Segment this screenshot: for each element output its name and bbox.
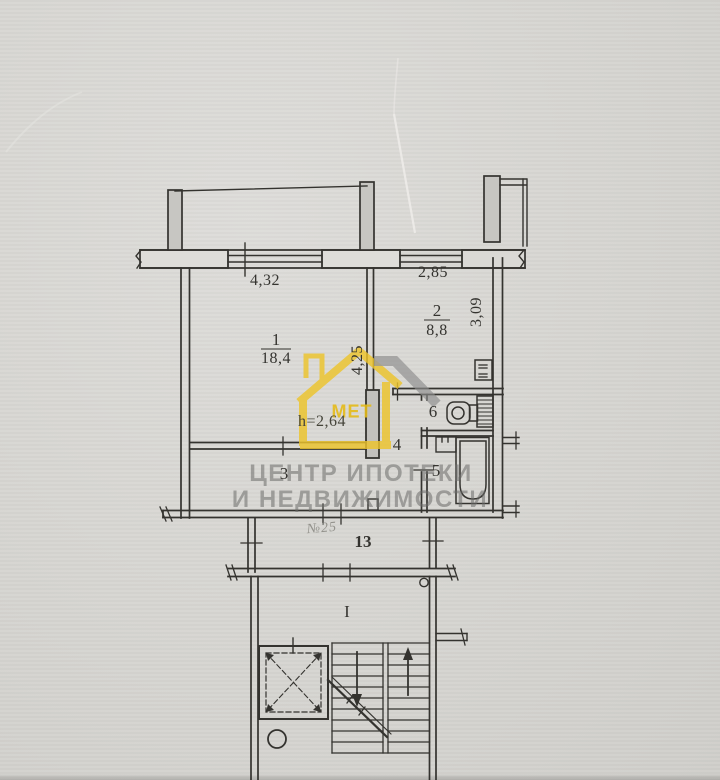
balcony: [168, 182, 374, 250]
hall-bath-divider-wall: [414, 395, 433, 513]
toilet: [447, 402, 478, 424]
stairs: [328, 643, 430, 753]
room1-bottom-wall: [190, 437, 366, 455]
sink: [436, 437, 456, 452]
column-mark: [420, 578, 428, 586]
landing-partitions: [241, 518, 443, 572]
floor-plan-drawing: [0, 0, 720, 780]
left-exterior-wall: [181, 268, 190, 518]
stove: [475, 360, 492, 380]
apartment-bottom-wall: [160, 499, 503, 524]
garbage-chute: [268, 730, 286, 748]
elevator-shaft: [259, 638, 328, 719]
scanned-floor-plan-document: МЕТ ЦЕНТР ИПОТЕКИ И НЕДВИЖИМОСТИ 4,32 2,…: [0, 0, 720, 780]
window-kitchen: [400, 250, 462, 268]
vent-shaft: [477, 396, 493, 427]
loggia: [484, 176, 527, 246]
window-room1: [228, 250, 322, 268]
scan-edge-shadow: [0, 774, 720, 780]
wc-bath-divider-wall: [422, 431, 494, 437]
exterior-top-wall: [136, 243, 525, 276]
room1-kitchen-wall: [366, 268, 379, 458]
bathtub: [456, 438, 489, 504]
stairwell-walls: [251, 577, 467, 780]
kitchen-bottom-wall: [393, 383, 503, 400]
entry-door-mark: [368, 499, 378, 510]
